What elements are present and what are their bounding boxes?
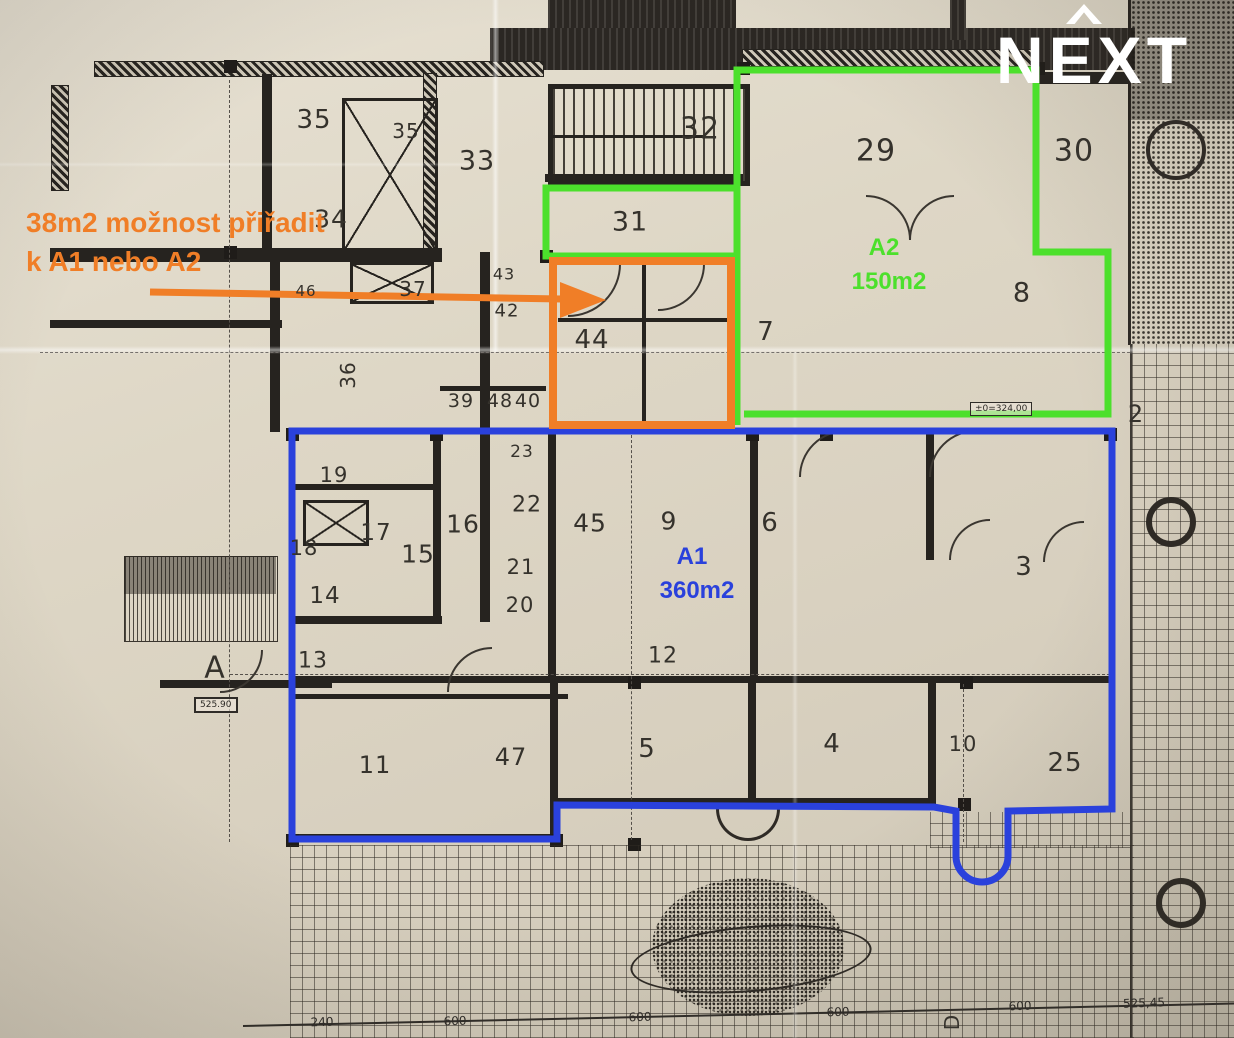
room-label-35: 35 — [296, 105, 331, 135]
room-label-9: 9 — [661, 507, 678, 536]
dimension-label: 525,45 — [1123, 995, 1165, 1010]
room-label-19: 19 — [320, 463, 349, 487]
room-label-37: 37 — [399, 277, 426, 301]
room-label-25: 25 — [1047, 748, 1082, 778]
room-label-30: 30 — [1054, 134, 1094, 169]
room-label-23: 23 — [510, 442, 534, 462]
room-label-11: 11 — [359, 751, 392, 779]
dimension-label: 600 — [1008, 999, 1031, 1014]
room-label-12: 12 — [648, 644, 678, 669]
next-logo: NEXT — [996, 22, 1192, 98]
room-label-44: 44 — [574, 325, 609, 355]
room-label-47: 47 — [495, 743, 528, 771]
room-label-5: 5 — [638, 734, 656, 764]
room-label-43: 43 — [493, 265, 515, 284]
section-d-marker: D — [940, 1014, 964, 1030]
zone-a1-area: 360m2 — [660, 577, 735, 605]
room-label-48: 48 — [487, 390, 513, 412]
room-label-13: 13 — [298, 649, 328, 674]
room-label-16: 16 — [446, 510, 480, 539]
room-label-14: 14 — [309, 583, 340, 609]
plan-labels: 3535333432312930874424342374636394840231… — [0, 0, 1234, 1038]
room-label-17: 17 — [360, 520, 391, 546]
level-marker: 525.90 — [194, 697, 238, 713]
room-label-18: 18 — [290, 536, 319, 560]
room-label-20: 20 — [506, 593, 535, 617]
room-label-15: 15 — [401, 540, 435, 569]
room-label-46: 46 — [295, 282, 316, 300]
zone-a1-name: A1 — [677, 543, 708, 571]
room-label-31: 31 — [612, 207, 648, 238]
zone-a2-area: 150m2 — [852, 268, 927, 296]
room-label-3: 3 — [1015, 552, 1033, 582]
room-label-42: 42 — [495, 301, 520, 322]
room-label-36: 36 — [336, 361, 360, 388]
room-label-33: 33 — [459, 146, 495, 177]
room-label-29: 29 — [856, 134, 896, 169]
room-label-10: 10 — [949, 732, 978, 756]
section-a-marker: A — [204, 651, 226, 686]
option-note-line1: 38m2 možnost přiřadit — [26, 207, 325, 239]
dimension-label: 600 — [826, 1005, 849, 1020]
room-label-45: 45 — [573, 509, 607, 538]
elevation-marker: ±0=324,00 — [970, 402, 1032, 416]
room-label-22: 22 — [512, 493, 542, 518]
dimension-label: 600 — [443, 1014, 466, 1029]
dimension-label: 600 — [628, 1010, 651, 1025]
room-label-8: 8 — [1013, 278, 1031, 309]
room-label-6: 6 — [761, 508, 779, 538]
room-label-39: 39 — [448, 390, 474, 412]
room-label-40: 40 — [515, 390, 541, 412]
room-label-21: 21 — [507, 555, 536, 579]
room-label-2: 2 — [1128, 400, 1144, 428]
room-label-4: 4 — [823, 729, 841, 759]
zone-a2-name: A2 — [869, 234, 900, 262]
floor-plan-scan: 3535333432312930874424342374636394840231… — [0, 0, 1234, 1038]
room-label-7: 7 — [757, 317, 775, 347]
dimension-label: 240 — [310, 1015, 333, 1030]
room-label-32: 32 — [680, 112, 720, 147]
option-note-line2: k A1 nebo A2 — [26, 246, 201, 278]
room-label-35: 35 — [392, 119, 419, 143]
